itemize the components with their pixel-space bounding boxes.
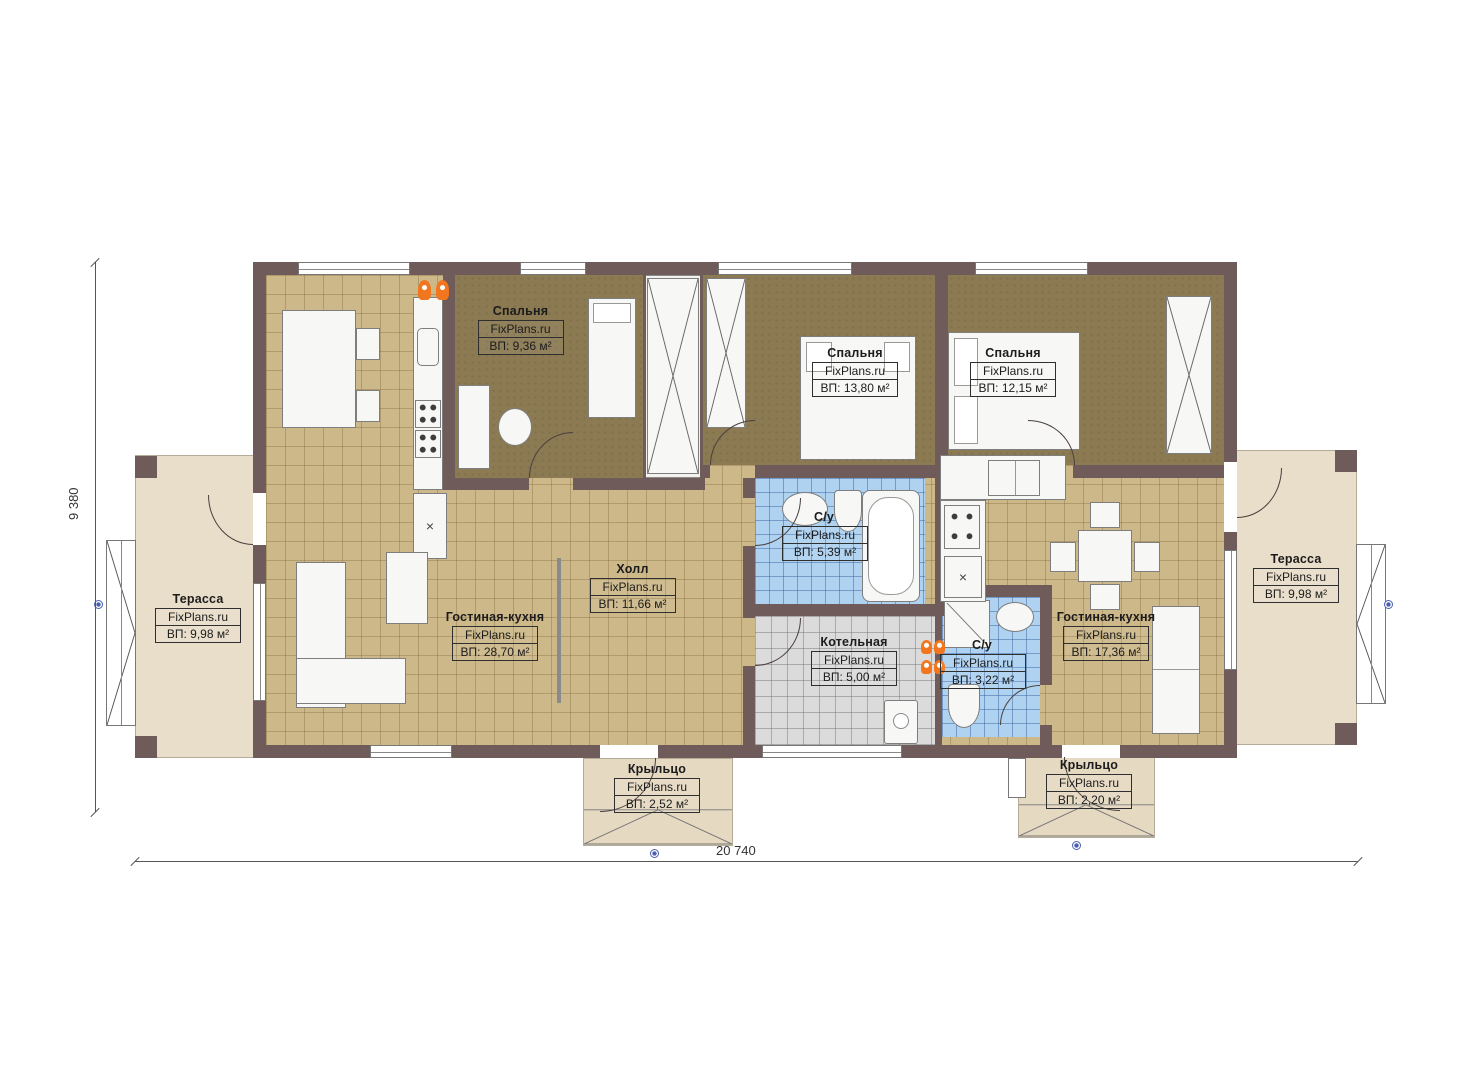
room-name: Спальня [468,304,573,318]
dimension-width-label: 20 740 [716,843,756,858]
wardrobe [647,278,699,474]
sink-divider [1015,461,1016,495]
wall-bedroom2-bottom-a [703,465,710,478]
window-right-living [1224,550,1237,670]
wall-bedroom1-left [443,275,455,478]
room-label-terrace-right: Терасса FixPlans.ruВП: 9,98 м² [1248,552,1344,603]
room-name: Терасса [1248,552,1344,566]
room-name: Холл [585,562,680,576]
terrace-right-door-gap [1224,462,1237,532]
sofa-corner-horizontal [296,658,406,704]
room-area: ВП: 12,15 м² [971,380,1055,396]
room-area: ВП: 28,70 м² [453,644,537,660]
wall-bedroom2-bottom-b [755,465,935,478]
kitchen-counter [413,297,443,490]
wardrobe-x-icon [1167,297,1211,453]
room-name: Спальня [800,346,910,360]
window-left-living [253,583,266,701]
room-label-bathroom-1: С/у FixPlans.ruВП: 5,39 м² [782,510,866,561]
terrace-right-post-bottom [1335,723,1357,745]
room-area: ВП: 11,66 м² [591,596,675,612]
bathtub [862,490,920,602]
room-label-living-kitchen-left: Гостиная-кухня FixPlans.ruВП: 28,70 м² [435,610,555,661]
stove-burners [415,430,441,458]
terrace-left-post-bottom [135,736,157,758]
wardrobe-x-icon [648,279,698,473]
terrace-left-window [106,540,136,726]
room-name: С/у [940,638,1024,652]
room-area: ВП: 3,22 м² [941,672,1025,688]
room-name: С/у [782,510,866,524]
wall-bath1-boiler [755,604,935,616]
cabinet-x: × [413,493,447,559]
room-name: Крыльцо [1040,758,1138,772]
wall-boiler-left [743,666,755,745]
room-label-porch-right: Крыльцо FixPlans.ruВП: 2,20 м² [1040,758,1138,809]
chair [1090,502,1120,528]
section-marker-porch-right [1072,841,1081,850]
window-top-bedroom1 [520,262,586,275]
room-label-porch-left: Крыльцо FixPlans.ruВП: 2,52 м² [608,762,706,813]
wardrobe [706,278,746,428]
entrance-door-left-gap [600,745,658,758]
chimney-stub [1008,758,1026,798]
window-bottom-boiler [762,745,902,758]
dining-table [282,310,356,428]
terrace-right-window [1356,544,1386,704]
watermark: FixPlans.ru [1047,775,1131,792]
boiler-dial [893,713,909,729]
room-area: ВП: 2,20 м² [1047,792,1131,808]
room-area: ВП: 9,98 м² [1254,586,1338,602]
window-top-bedroom2 [718,262,852,275]
room-label-bedroom-2: Спальня FixPlans.ruВП: 13,80 м² [800,346,910,397]
stove-burners [944,505,980,549]
room-area: ВП: 9,36 м² [479,338,563,354]
watermark: FixPlans.ru [615,779,699,796]
section-marker-porch-left [650,849,659,858]
chair [356,390,380,422]
pillow [593,303,631,323]
room-name: Спальня [958,346,1068,360]
room-area: ВП: 13,80 м² [813,380,897,396]
toilet [948,684,980,728]
room-label-boiler-room: Котельная FixPlans.ruВП: 5,00 м² [800,635,908,686]
wall-closet-left [643,275,646,478]
vent-icon [921,660,932,674]
watermark: FixPlans.ru [479,321,563,338]
room-label-bedroom-3: Спальня FixPlans.ruВП: 12,15 м² [958,346,1068,397]
bathtub-inner [868,497,914,595]
watermark: FixPlans.ru [1254,569,1338,586]
window-top-living [298,262,410,275]
vent-icon [921,640,932,654]
room-name: Крыльцо [608,762,706,776]
desk-chair [498,408,532,446]
wall-bedroom1-bottom-b [573,478,705,490]
terrace-right-post-top [1335,450,1357,472]
room-area: ВП: 2,52 м² [615,796,699,812]
terrace-left-door-gap [253,493,266,545]
kitchen-sink-drainer [988,460,1040,496]
dining-table [1078,530,1132,582]
section-marker-right [1384,600,1393,609]
stove-burners [415,400,441,428]
chair [356,328,380,360]
floor-plan: × × [0,0,1474,1080]
window-top-bedroom3 [975,262,1088,275]
room-label-terrace-left: Терасса FixPlans.ruВП: 9,98 м² [150,592,246,643]
room-area: ВП: 17,36 м² [1064,644,1148,660]
vent-icon [436,280,449,300]
dimension-height-label: 9 380 [66,487,81,520]
chair [1090,584,1120,610]
dimension-line-width [135,861,1358,862]
wardrobe-x-icon [707,279,745,427]
room-label-bedroom-1: Спальня FixPlans.ruВП: 9,36 м² [468,304,573,355]
watermark: FixPlans.ru [813,363,897,380]
wall-bedroom1-bottom-a [443,478,529,490]
coffee-table [386,552,428,624]
watermark: FixPlans.ru [1064,627,1148,644]
watermark: FixPlans.ru [156,609,240,626]
partition-line [557,558,561,703]
room-area: ВП: 5,00 м² [812,669,896,685]
bed [588,298,636,418]
window-bottom-living [370,745,452,758]
boiler-unit [884,700,918,744]
room-name: Гостиная-кухня [435,610,555,624]
wall-bath2-right-b [1040,725,1052,745]
window-brace-icon [1357,545,1385,703]
wall-closet-right [700,275,703,478]
room-label-bathroom-2: С/у FixPlans.ruВП: 3,22 м² [940,638,1024,689]
room-label-living-kitchen-right: Гостиная-кухня FixPlans.ruВП: 17,36 м² [1046,610,1166,661]
watermark: FixPlans.ru [971,363,1055,380]
wardrobe [1166,296,1212,454]
watermark: FixPlans.ru [591,579,675,596]
bathroom-sink [996,602,1034,632]
pillow [954,396,978,444]
watermark: FixPlans.ru [812,652,896,669]
room-area: ВП: 5,39 м² [783,544,867,560]
watermark: FixPlans.ru [783,527,867,544]
window-brace-icon [107,541,135,725]
sofa-cushion-line [1153,669,1199,670]
watermark: FixPlans.ru [941,655,1025,672]
vent-icon [418,280,431,300]
desk [458,385,490,469]
room-label-hall: Холл FixPlans.ruВП: 11,66 м² [585,562,680,613]
wall-bedroom3-bottom-b [1073,465,1224,478]
watermark: FixPlans.ru [453,627,537,644]
wall-bath1-left-b [743,546,755,618]
chair [1134,542,1160,572]
chair [1050,542,1076,572]
room-name: Гостиная-кухня [1046,610,1166,624]
room-area: ВП: 9,98 м² [156,626,240,642]
cabinet-x: × [944,556,982,598]
wall-bath1-left-a [743,478,755,498]
kitchen-sink [417,328,439,366]
room-name: Котельная [800,635,908,649]
dimension-line-height [95,262,96,812]
terrace-left-post-top [135,456,157,478]
room-name: Терасса [150,592,246,606]
